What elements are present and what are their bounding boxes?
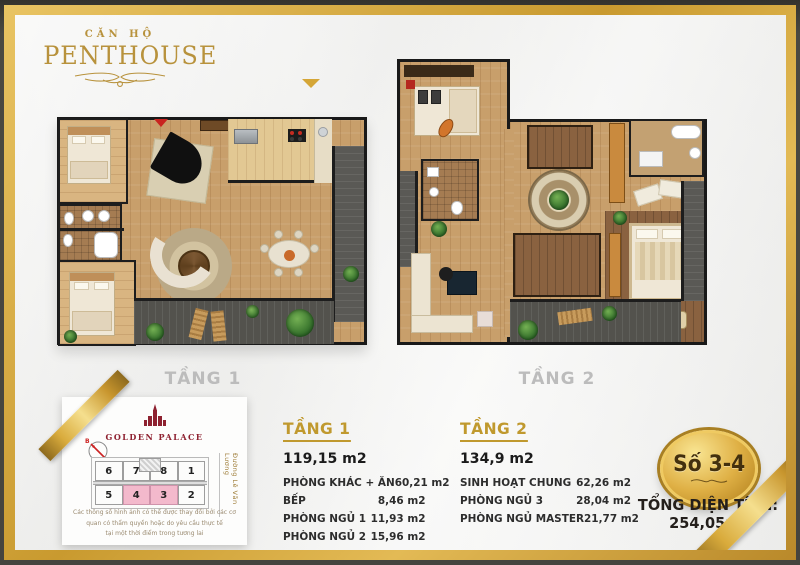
- room-name: PHÒNG NGỦ MASTER: [460, 512, 584, 525]
- room-row: PHÒNG NGỦ MASTER 21,77 m2: [460, 512, 631, 525]
- room-area: 15,96 m2: [371, 530, 426, 543]
- unit-cell-6: 6: [95, 461, 123, 481]
- plant-icon: [613, 211, 627, 225]
- room-area: 60,21 m2: [395, 476, 450, 489]
- closet: [609, 233, 621, 297]
- terrace: [510, 299, 681, 342]
- plant-icon: [286, 309, 314, 337]
- brand-title: PENTHOUSE: [43, 41, 197, 70]
- brochure-page: CĂN HỘ PENTHOUSE: [0, 0, 800, 565]
- bed: [67, 126, 111, 184]
- lounge-chair: [557, 308, 592, 326]
- flourish-ornament-icon: [65, 71, 175, 89]
- balcony: [681, 181, 704, 301]
- bedroom-1: [58, 118, 128, 204]
- title-pointer-icon: [302, 79, 320, 88]
- unit-cell-1: 1: [178, 461, 206, 481]
- bathroom: [629, 119, 704, 177]
- project-info-card: GOLDEN PALACE B 6 7 8 1: [62, 397, 247, 545]
- bottom-right-ribbon-icon: [670, 434, 786, 550]
- toy-box: [406, 80, 415, 89]
- lounge-chair: [189, 308, 209, 340]
- bed: [69, 272, 115, 336]
- room-row: PHÒNG NGỦ 2 15,96 m2: [283, 530, 426, 543]
- stair-void: [527, 125, 593, 169]
- floor2-label: TẦNG 2: [507, 369, 607, 389]
- street-label: Đường Lê Văn Lương: [219, 453, 239, 517]
- floor1-label: TẦNG 1: [153, 369, 253, 389]
- unit-diagram: 6 7 8 1 5 4 3 2: [95, 461, 205, 505]
- room-name: BẾP: [283, 494, 306, 507]
- unit-cell-3-highlighted: 3: [150, 485, 178, 505]
- unit-cell-4-highlighted: 4: [123, 485, 151, 505]
- floor1-details: TẦNG 1 119,15 m2 PHÒNG KHÁC + ĂN 60,21 m…: [283, 419, 433, 548]
- entrance-marker-icon: [154, 119, 168, 127]
- floor1-details-title: TẦNG 1: [283, 419, 350, 442]
- room-row: SINH HOẠT CHUNG 62,26 m2: [460, 476, 631, 489]
- unit-cell-2: 2: [178, 485, 206, 505]
- plant-icon: [549, 190, 569, 210]
- brand-subtitle: CĂN HỘ: [40, 29, 200, 40]
- plant-icon: [431, 221, 447, 237]
- bedroom-2: [58, 260, 136, 346]
- brand-block: CĂN HỘ PENTHOUSE: [40, 29, 200, 93]
- elevator-core-icon: [139, 458, 161, 472]
- plant-icon: [343, 266, 359, 282]
- room-area: 62,26 m2: [576, 476, 631, 489]
- bathroom: [421, 159, 479, 221]
- plant-icon: [246, 305, 259, 318]
- room-name: PHÒNG KHÁC + ĂN: [283, 476, 395, 489]
- family-lounge: [403, 227, 507, 339]
- room-row: PHÒNG KHÁC + ĂN 60,21 m2: [283, 476, 426, 489]
- floor1-total-area: 119,15 m2: [283, 451, 429, 467]
- wardrobe: [404, 65, 474, 77]
- plant-icon: [518, 320, 538, 340]
- floor2-details: TẦNG 2 134,9 m2 SINH HOẠT CHUNG 62,26 m2…: [460, 419, 640, 530]
- bedroom-3: [400, 62, 507, 157]
- floor2-total-area: 134,9 m2: [460, 451, 635, 467]
- curved-sofa: [144, 216, 222, 294]
- room-row: PHÒNG NGỦ 3 28,04 m2: [460, 494, 631, 507]
- bathroom: [58, 204, 122, 262]
- terrace: [134, 298, 334, 344]
- unit-cell-5: 5: [95, 485, 123, 505]
- closet: [609, 123, 625, 203]
- kitchen: [228, 119, 332, 183]
- round-rug: [156, 228, 232, 304]
- kitchen-island: [234, 129, 258, 144]
- lounge-chair: [210, 310, 226, 341]
- room-name: SINH HOẠT CHUNG: [460, 476, 571, 489]
- plant-icon: [64, 330, 77, 343]
- floor1-plan: [57, 117, 367, 345]
- stove-icon: [288, 129, 306, 142]
- room-name: PHÒNG NGỦ 1: [283, 512, 366, 525]
- floor2-details-title: TẦNG 2: [460, 419, 527, 442]
- dining-table: [268, 240, 310, 268]
- room-name: PHÒNG NGỦ 2: [283, 530, 366, 543]
- disclaimer-text: Các thông số hình ảnh có thể được thay đ…: [68, 508, 241, 539]
- stair-void: [513, 233, 601, 297]
- plant-icon: [602, 306, 617, 321]
- room-area: 8,46 m2: [378, 494, 426, 507]
- main-card: CĂN HỘ PENTHOUSE: [15, 15, 786, 550]
- room-row: PHÒNG NGỦ 1 11,93 m2: [283, 512, 426, 525]
- floor2-plan: [397, 59, 707, 345]
- room-area: 11,93 m2: [371, 512, 426, 525]
- compass-north-label: B: [85, 438, 90, 445]
- room-row: BẾP 8,46 m2: [283, 494, 426, 507]
- golden-palace-building-icon: [140, 404, 170, 426]
- balcony: [332, 146, 364, 322]
- medallion-rug: [530, 171, 588, 229]
- plant-icon: [146, 323, 164, 341]
- sink-icon: [318, 127, 328, 137]
- room-name: PHÒNG NGỦ 3: [460, 494, 543, 507]
